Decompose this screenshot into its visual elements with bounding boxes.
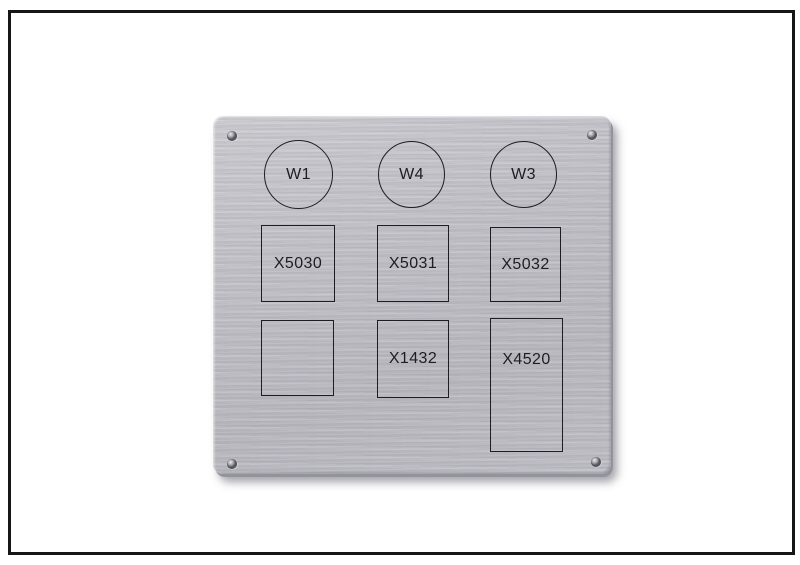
circle-marking-w4: W4 (378, 141, 445, 208)
rect-marking-blank (261, 320, 334, 396)
screw-hole-top-left-icon (227, 131, 237, 141)
photo-frame: W1 W4 W3 X5030 X5031 X5032 X1 (8, 10, 795, 555)
rect-label-x4520: X4520 (502, 352, 550, 368)
circle-label-w1: W1 (286, 167, 311, 183)
metal-panel: W1 W4 W3 X5030 X5031 X5032 X1 (213, 116, 611, 474)
circle-label-w3: W3 (511, 167, 536, 183)
rect-marking-x5030: X5030 (261, 225, 335, 302)
rect-marking-x1432: X1432 (377, 320, 449, 398)
rect-label-x5030: X5030 (274, 256, 322, 272)
circle-marking-w3: W3 (490, 141, 557, 208)
rect-marking-x4520: X4520 (490, 318, 563, 452)
circle-label-w4: W4 (399, 167, 424, 183)
rect-marking-x5032: X5032 (490, 227, 561, 302)
circle-marking-w1: W1 (264, 140, 333, 209)
screw-hole-bottom-right-icon (591, 457, 601, 467)
photo-stage: W1 W4 W3 X5030 X5031 X5032 X1 (0, 0, 800, 565)
screw-hole-top-right-icon (587, 130, 597, 140)
rect-label-x5031: X5031 (389, 256, 437, 272)
rect-marking-x5031: X5031 (377, 225, 449, 302)
rect-label-x5032: X5032 (501, 257, 549, 273)
screw-hole-bottom-left-icon (227, 459, 237, 469)
rect-label-x1432: X1432 (389, 351, 437, 367)
